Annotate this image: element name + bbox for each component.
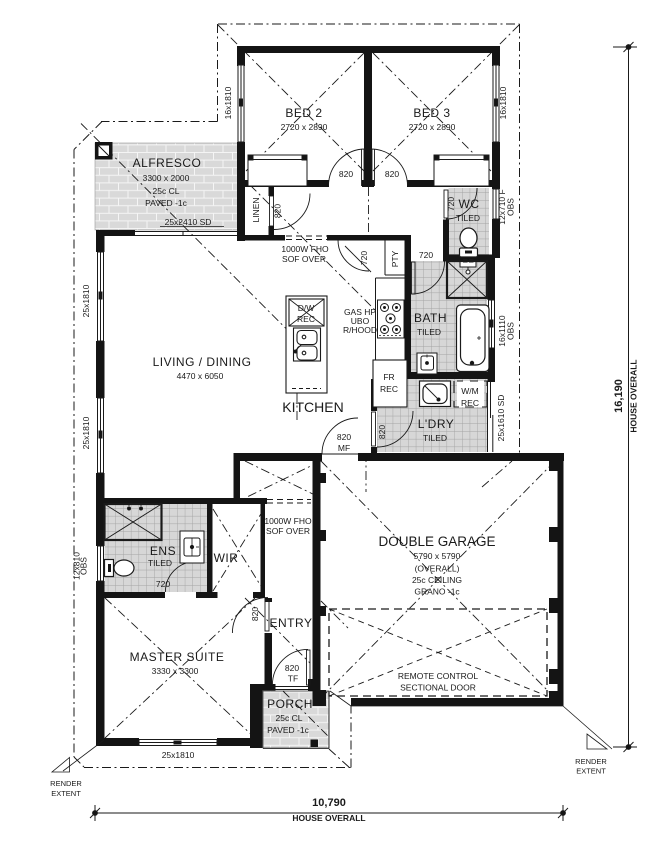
svg-text:720: 720	[419, 250, 433, 260]
svg-text:ALFRESCO: ALFRESCO	[133, 156, 202, 170]
svg-text:LINEN: LINEN	[251, 197, 261, 222]
svg-text:MASTER SUITE: MASTER SUITE	[130, 650, 225, 664]
svg-text:25c CEILING: 25c CEILING	[412, 575, 462, 585]
svg-text:16x1810: 16x1810	[223, 86, 233, 119]
svg-text:5790 x 5790: 5790 x 5790	[414, 551, 461, 561]
svg-text:WC: WC	[459, 197, 480, 211]
svg-text:HOUSE OVERALL: HOUSE OVERALL	[292, 813, 365, 823]
svg-text:820: 820	[339, 169, 353, 179]
svg-text:OBS: OBS	[506, 322, 516, 340]
svg-text:1000W FHO: 1000W FHO	[264, 516, 312, 526]
svg-text:ENTRY: ENTRY	[270, 616, 313, 630]
svg-text:PORCH: PORCH	[267, 697, 313, 711]
svg-text:SOF OVER: SOF OVER	[266, 526, 310, 536]
svg-text:W/M: W/M	[461, 386, 478, 396]
svg-text:BED 2: BED 2	[285, 106, 322, 120]
svg-text:FR: FR	[383, 372, 394, 382]
svg-text:RENDER: RENDER	[50, 779, 82, 788]
svg-text:SECTIONAL DOOR: SECTIONAL DOOR	[400, 683, 476, 693]
svg-text:BATH: BATH	[414, 311, 447, 325]
svg-text:820: 820	[285, 663, 299, 673]
svg-text:REMOTE CONTROL: REMOTE CONTROL	[398, 671, 479, 681]
svg-text:REC: REC	[461, 398, 479, 408]
svg-text:16x1810: 16x1810	[498, 86, 508, 119]
svg-text:2720 x 2890: 2720 x 2890	[409, 122, 456, 132]
svg-text:EXTENT: EXTENT	[576, 767, 606, 776]
svg-text:720: 720	[446, 197, 456, 211]
svg-text:25x1610 SD: 25x1610 SD	[496, 395, 506, 442]
svg-text:BED 3: BED 3	[413, 106, 450, 120]
svg-text:PAVED -1c: PAVED -1c	[145, 198, 187, 208]
svg-text:MF: MF	[338, 443, 350, 453]
svg-text:4470 x 6050: 4470 x 6050	[177, 371, 224, 381]
svg-text:OBS: OBS	[79, 557, 89, 575]
svg-text:GRANO -1c: GRANO -1c	[414, 587, 460, 597]
svg-text:RENDER: RENDER	[575, 757, 607, 766]
svg-text:TILED: TILED	[456, 213, 480, 223]
svg-text:TF: TF	[288, 674, 298, 684]
svg-text:TILED: TILED	[148, 558, 172, 568]
svg-text:EXTENT: EXTENT	[51, 789, 81, 798]
svg-text:720: 720	[359, 251, 369, 265]
svg-text:ENS: ENS	[150, 544, 176, 558]
svg-text:1000W FHO: 1000W FHO	[281, 244, 329, 254]
svg-text:D/W: D/W	[298, 303, 315, 313]
svg-text:DOUBLE GARAGE: DOUBLE GARAGE	[378, 534, 495, 549]
svg-text:PTY: PTY	[390, 250, 400, 267]
svg-text:TILED: TILED	[423, 433, 447, 443]
svg-text:R/HOOD: R/HOOD	[343, 325, 377, 335]
svg-text:3330 x 3300: 3330 x 3300	[152, 666, 199, 676]
svg-text:TILED: TILED	[417, 327, 441, 337]
svg-text:PAVED -1c: PAVED -1c	[267, 725, 309, 735]
svg-text:OBS: OBS	[506, 198, 516, 216]
svg-text:REC: REC	[297, 314, 315, 324]
svg-text:LIVING / DINING: LIVING / DINING	[153, 355, 252, 369]
svg-text:KITCHEN: KITCHEN	[282, 399, 343, 415]
svg-text:25x1810: 25x1810	[81, 284, 91, 317]
svg-text:25x2410 SD: 25x2410 SD	[165, 217, 212, 227]
svg-text:3300 x 2000: 3300 x 2000	[143, 173, 190, 183]
svg-text:25x1810: 25x1810	[81, 416, 91, 449]
svg-text:HOUSE OVERALL: HOUSE OVERALL	[629, 359, 639, 432]
svg-text:720: 720	[156, 579, 170, 589]
svg-text:SOF OVER: SOF OVER	[282, 254, 326, 264]
svg-text:820: 820	[377, 425, 387, 439]
svg-text:25c CL: 25c CL	[276, 713, 303, 723]
svg-text:L'DRY: L'DRY	[418, 417, 455, 431]
svg-text:WIR: WIR	[214, 551, 239, 565]
svg-text:10,790: 10,790	[312, 797, 346, 809]
svg-text:820: 820	[385, 169, 399, 179]
svg-text:(OVERALL): (OVERALL)	[415, 564, 460, 574]
svg-text:25x1810: 25x1810	[162, 750, 195, 760]
svg-text:820: 820	[273, 204, 283, 218]
svg-text:16,190: 16,190	[613, 379, 625, 413]
svg-text:820: 820	[250, 607, 260, 621]
svg-text:25c CL: 25c CL	[153, 186, 180, 196]
svg-text:2720 x 2890: 2720 x 2890	[281, 122, 328, 132]
svg-text:820: 820	[337, 432, 351, 442]
svg-text:REC: REC	[380, 384, 398, 394]
